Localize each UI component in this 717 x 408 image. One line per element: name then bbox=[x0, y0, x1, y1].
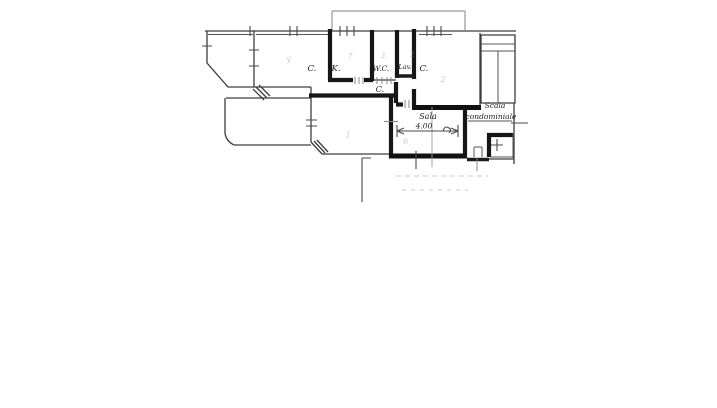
window-ticks-left-rooms bbox=[202, 46, 259, 66]
stairwell bbox=[481, 35, 515, 103]
stairwell-divisions bbox=[481, 44, 515, 103]
label-laundry: Lav. bbox=[397, 63, 411, 71]
door-ticks-sala-entry bbox=[405, 100, 409, 108]
thick-walls bbox=[309, 29, 513, 160]
label-stairs-line2: condominiale bbox=[466, 112, 517, 121]
label-kitchen: K. bbox=[330, 64, 340, 74]
pencil-mark-room-left: y bbox=[284, 53, 292, 63]
door-ticks-kitchen bbox=[355, 77, 363, 84]
dimension-squiggle bbox=[443, 127, 451, 133]
label-stairs-line1: Scala bbox=[485, 101, 506, 110]
bottom-dimension-bracket bbox=[362, 158, 371, 202]
label-room-right: C. bbox=[420, 64, 429, 74]
label-sala: Sala bbox=[419, 112, 437, 121]
pencil-mark-wc: 3 bbox=[381, 52, 386, 60]
scan-artifacts bbox=[396, 176, 488, 190]
terrace-outline bbox=[225, 98, 311, 145]
wall-room-a-left bbox=[207, 31, 254, 87]
pencil-mark-kitchen: 7 bbox=[347, 52, 353, 61]
label-dimension: 4.00 bbox=[415, 122, 433, 131]
pencil-mark-room-right: 2 bbox=[439, 75, 445, 84]
pencil-mark-laundry: 2 bbox=[409, 51, 415, 59]
floor-plan-drawing: C. K. W.C. Lav. C. C. Sala 4.00 Scala co… bbox=[0, 0, 717, 408]
top-dimension-bracket bbox=[332, 11, 465, 30]
scanned-floorplan-page: C. K. W.C. Lav. C. C. Sala 4.00 Scala co… bbox=[0, 0, 717, 408]
elevator-cross-mark bbox=[491, 139, 503, 151]
landing-door-opening bbox=[474, 147, 482, 157]
elevator bbox=[474, 133, 513, 171]
label-room-left: C. bbox=[308, 64, 317, 74]
label-corridor: C. bbox=[376, 85, 384, 94]
wall-corridor-right bbox=[396, 82, 403, 105]
window-hatch-living-corner bbox=[311, 140, 328, 154]
pencil-mark-living: 1 bbox=[345, 131, 350, 140]
pencil-mark-sala: 6 bbox=[402, 137, 409, 147]
label-wc: W.C. bbox=[373, 64, 390, 73]
